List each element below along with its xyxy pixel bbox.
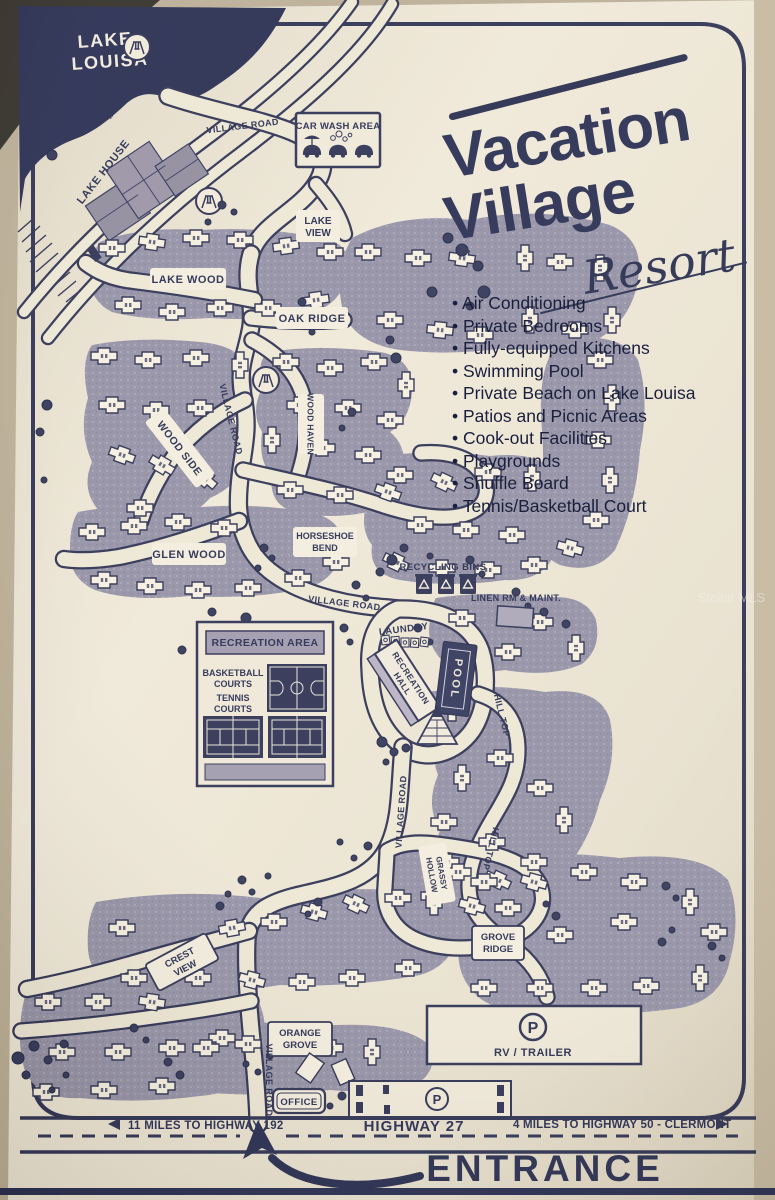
tree-icon <box>673 895 679 901</box>
label-lake-view: LAKE VIEW <box>296 210 340 242</box>
parking-p: P <box>433 1092 442 1107</box>
tree-icon <box>164 1058 172 1066</box>
svg-text:GROVE: GROVE <box>283 1040 317 1051</box>
tree-icon <box>255 1069 261 1075</box>
tree-icon <box>376 568 384 576</box>
tree-icon <box>205 219 211 225</box>
tree-icon <box>243 1061 249 1067</box>
tennis-label1: TENNIS <box>216 693 249 703</box>
playground-icon <box>124 34 150 60</box>
tree-icon <box>265 873 271 879</box>
tennis-label2: COURTS <box>214 704 252 714</box>
tree-icon <box>49 1087 55 1093</box>
miles-right-label: 4 MILES TO HIGHWAY 50 - CLERMONT <box>513 1119 731 1131</box>
playground-icon <box>196 188 222 214</box>
amenity-item: Swimming Pool <box>452 360 742 383</box>
tree-icon <box>708 942 716 950</box>
tree-icon <box>543 901 549 907</box>
amenity-item: Fully-equipped Kitchens <box>452 337 742 360</box>
car-wash-label: CAR WASH AREA <box>296 121 381 132</box>
tree-icon <box>327 1103 333 1109</box>
amenity-item: Air Conditioning <box>452 292 742 315</box>
svg-text:VIEW: VIEW <box>305 228 331 239</box>
tree-icon <box>225 891 231 897</box>
tree-icon <box>669 927 675 933</box>
tree-icon <box>427 287 437 297</box>
linen-label: LINEN RM & MAINT. <box>471 593 561 603</box>
recycling-label: RECYCLING BINS <box>400 562 487 573</box>
svg-text:OFFICE: OFFICE <box>280 1097 317 1108</box>
svg-text:RIDGE: RIDGE <box>483 944 513 955</box>
tree-icon <box>44 1056 52 1064</box>
tree-icon <box>347 639 353 645</box>
label-lake-wood: LAKE WOOD <box>150 268 226 290</box>
highway-label: HIGHWAY 27 <box>364 1118 465 1135</box>
tree-icon <box>216 902 224 910</box>
office-sign: OFFICE <box>273 1089 325 1113</box>
entrance-label: ENTRANCE <box>426 1148 664 1189</box>
map-canvas: LAKE LOUISA CAR WASH AREA <box>0 0 775 1200</box>
svg-text:GLEN WOOD: GLEN WOOD <box>152 549 226 561</box>
tree-icon <box>36 428 44 436</box>
tree-icon <box>298 298 306 306</box>
tree-icon <box>351 855 357 861</box>
tree-icon <box>178 646 186 654</box>
label-oak-ridge: OAK RIDGE <box>276 307 348 329</box>
amenity-item: Private Bedrooms <box>452 315 742 338</box>
svg-text:WOOD HAVEN: WOOD HAVEN <box>306 393 316 455</box>
basketball-label1: BASKETBALL <box>203 668 264 678</box>
tree-icon <box>719 955 725 961</box>
tree-icon <box>130 1024 138 1032</box>
tree-icon <box>390 748 398 756</box>
svg-text:ORANGE: ORANGE <box>279 1028 321 1039</box>
tree-icon <box>337 839 343 845</box>
tree-icon <box>348 408 356 416</box>
label-orange-grove: ORANGE GROVE <box>268 1022 332 1056</box>
tree-icon <box>47 150 57 160</box>
tree-icon <box>383 759 389 765</box>
rv-trailer-parking: P RV / TRAILER <box>427 1006 641 1064</box>
tennis-court <box>203 716 263 758</box>
tree-icon <box>552 912 560 920</box>
tree-icon <box>208 608 216 616</box>
tree-icon <box>255 565 261 571</box>
tree-icon <box>22 1071 30 1079</box>
tree-icon <box>29 1041 39 1051</box>
amenity-item: Playgrounds <box>452 450 742 473</box>
amenity-item: Tennis/Basketball Court <box>452 495 742 518</box>
label-wood-haven: WOOD HAVEN <box>298 393 324 455</box>
tree-icon <box>12 1052 24 1064</box>
tree-icon <box>400 544 408 552</box>
tree-icon <box>249 889 255 895</box>
tree-icon <box>309 329 315 335</box>
tree-icon <box>231 209 237 215</box>
office-parking-lot: P <box>349 1081 511 1117</box>
recreation-area-title: RECREATION AREA <box>212 637 319 649</box>
tree-icon <box>338 1092 346 1100</box>
svg-text:HORSESHOE: HORSESHOE <box>296 531 354 541</box>
tree-icon <box>269 555 275 561</box>
resort-map-photo: LAKE LOUISA CAR WASH AREA <box>0 0 775 1200</box>
svg-text:BEND: BEND <box>312 543 338 553</box>
tree-icon <box>364 842 372 850</box>
svg-text:LAKE: LAKE <box>304 216 332 227</box>
tree-icon <box>473 261 483 271</box>
tree-icon <box>42 400 52 410</box>
tree-icon <box>391 353 401 363</box>
tree-icon <box>260 544 268 552</box>
recreation-area: RECREATION AREA BASKETBALL COURTS TENNIS… <box>197 622 333 786</box>
tree-icon <box>176 1071 184 1079</box>
tree-icon <box>377 737 387 747</box>
tree-icon <box>218 201 226 209</box>
tree-icon <box>305 911 311 917</box>
amenity-item: Private Beach on Lake Louisa <box>452 382 742 405</box>
basketball-label2: COURTS <box>214 679 252 689</box>
tree-icon <box>402 744 410 752</box>
tree-icon <box>143 1037 149 1043</box>
svg-text:OAK RIDGE: OAK RIDGE <box>279 313 346 325</box>
tree-icon <box>562 620 570 628</box>
amenities-list: Air ConditioningPrivate BedroomsFully-eq… <box>452 292 742 517</box>
amenity-item: Cook-out Facilities <box>452 427 742 450</box>
svg-text:GROVE: GROVE <box>481 932 515 943</box>
tree-icon <box>540 608 548 616</box>
tree-icon <box>427 553 433 559</box>
tree-icon <box>41 477 47 483</box>
playground-icon <box>253 367 279 393</box>
tree-icon <box>238 876 246 884</box>
tree-icon <box>339 425 345 431</box>
tree-icon <box>352 581 360 589</box>
tree-icon <box>63 1072 69 1078</box>
tree-icon <box>314 898 322 906</box>
tree-icon <box>387 555 397 565</box>
svg-text:LAKE WOOD: LAKE WOOD <box>152 274 225 286</box>
rv-trailer-label: RV / TRAILER <box>494 1047 572 1059</box>
bottom-rule <box>0 1188 775 1195</box>
tree-icon <box>60 1040 68 1048</box>
parking-p: P <box>528 1020 539 1037</box>
label-grove-ridge: GROVE RIDGE <box>472 926 524 960</box>
tennis-court <box>268 716 326 758</box>
amenity-item: Shuffle Board <box>452 472 742 495</box>
label-horseshoe-bend: HORSESHOE BEND <box>293 527 357 557</box>
tree-icon <box>662 882 670 890</box>
car-wash-area: CAR WASH AREA <box>296 113 381 167</box>
tree-icon <box>658 938 666 946</box>
watermark: Stellar MLS <box>698 590 766 605</box>
basketball-court <box>267 664 327 712</box>
label-glen-wood: GLEN WOOD <box>152 543 226 565</box>
amenity-item: Patios and Picnic Areas <box>452 405 742 428</box>
tree-icon <box>386 336 394 344</box>
tree-icon <box>340 624 348 632</box>
